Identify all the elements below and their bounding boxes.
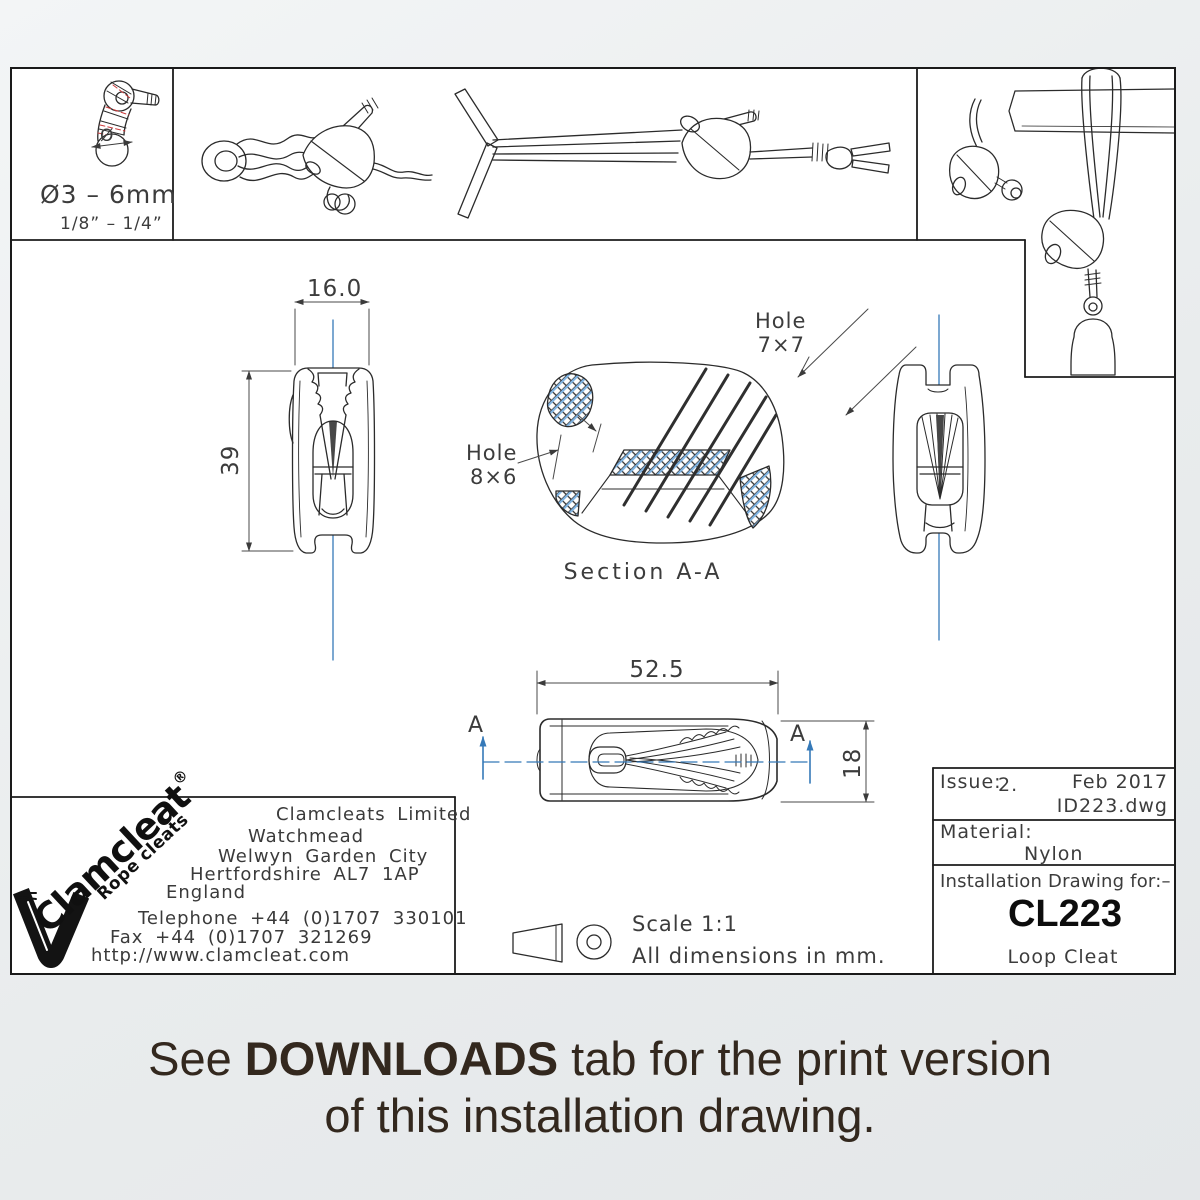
- issue-date: Feb 2017: [1052, 772, 1168, 794]
- rope-diameter-illustration: [92, 81, 159, 166]
- drawing-file-name: ID223.dwg: [1052, 796, 1168, 818]
- product-installation-drawing-page: { "banner": { "line1_prefix": "See ", "l…: [0, 0, 1200, 1200]
- downloads-banner: See DOWNLOADS tab for the print version …: [0, 1030, 1200, 1144]
- company-name: Clamcleats Limited: [276, 805, 471, 826]
- hole-side-word: Hole: [466, 441, 517, 465]
- issue-label: Issue:: [940, 772, 1002, 794]
- diameter-symbol: Ø: [100, 127, 114, 147]
- banner-line-2: of this installation drawing.: [0, 1087, 1200, 1144]
- company-website[interactable]: http://www.clamcleat.com: [91, 946, 350, 967]
- banner-prefix: See: [148, 1032, 245, 1085]
- cleat-ring-illustration: [202, 98, 432, 214]
- top-view-drawing: [483, 719, 810, 801]
- hole-side-size: 8×6: [470, 465, 517, 489]
- rope-size-metric: Ø3 – 6mm: [40, 181, 177, 210]
- dim-top-depth: 18: [840, 740, 866, 786]
- section-aa-drawing: [518, 309, 916, 543]
- material-label: Material:: [940, 822, 1033, 844]
- company-address-1: Watchmead: [248, 827, 364, 848]
- units-note: All dimensions in mm.: [632, 944, 886, 968]
- front-view-drawing: [289, 320, 374, 660]
- dim-top-length: 52.5: [624, 657, 690, 683]
- dim-front-width: 16.0: [307, 276, 359, 302]
- dim-front-height: 39: [218, 437, 244, 483]
- hole-top-size: 7×7: [755, 333, 805, 357]
- section-marker-left: A: [468, 713, 484, 738]
- pole-loop-illustration: [950, 69, 1174, 375]
- drawing-sheet: Ø3 – 6mm 1/8” – 1/4” Ø 16.0 39 52.5 18 H…: [10, 67, 1176, 975]
- banner-suffix: tab for the print version: [558, 1032, 1052, 1085]
- company-address-4: England: [166, 883, 246, 904]
- banner-downloads-word: DOWNLOADS: [245, 1032, 558, 1085]
- rope-size-imperial: 1/8” – 1/4”: [60, 215, 163, 235]
- hole-top-word: Hole: [755, 309, 805, 333]
- section-marker-right: A: [790, 722, 806, 747]
- projection-symbol: [513, 924, 611, 962]
- banner-line-1: See DOWNLOADS tab for the print version: [0, 1030, 1200, 1087]
- part-name: Loop Cleat: [990, 947, 1136, 969]
- side-view-drawing: [893, 315, 985, 640]
- issue-value: 2.: [998, 775, 1018, 797]
- shock-cord-assembly-illustration: [455, 89, 890, 218]
- part-number: CL223: [990, 893, 1140, 937]
- material-value: Nylon: [1024, 844, 1083, 866]
- scale-note: Scale 1:1: [632, 912, 738, 936]
- section-label: Section A-A: [563, 560, 723, 585]
- drawing-for-label: Installation Drawing for:–: [940, 872, 1171, 893]
